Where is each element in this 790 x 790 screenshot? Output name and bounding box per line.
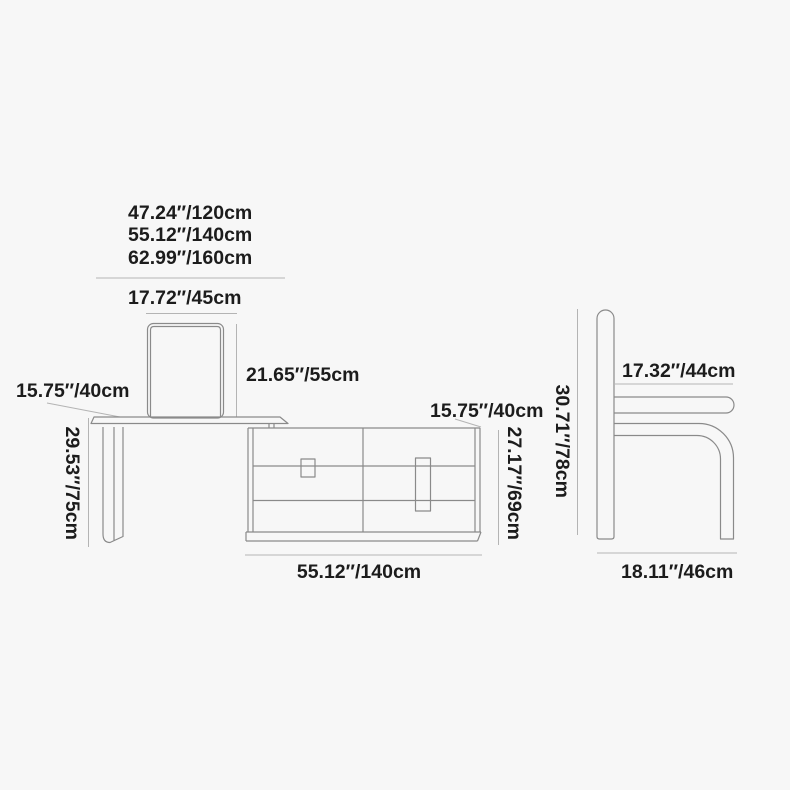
cabinet: [246, 428, 481, 541]
drawer-divider-lines: [253, 466, 475, 501]
desk-height-label: 29.53″/75cm: [61, 418, 83, 548]
desk-width-options: 47.24″/120cm 55.12″/140cm 62.99″/160cm: [128, 202, 252, 269]
desk-leg: [103, 427, 123, 543]
tabletop-connectors: [269, 424, 274, 429]
chair-seat-rail: [614, 397, 734, 413]
chair-height-label: 30.71″/78cm: [551, 376, 573, 506]
drawer-handle-left: [301, 459, 315, 477]
desk-width-option-160: 62.99″/160cm: [128, 247, 252, 269]
cabinet-height-label: 27.17″/69cm: [503, 418, 525, 548]
mirror: [148, 324, 224, 419]
mirror-height-label: 21.65″/55cm: [246, 364, 359, 386]
desk-width-option-120: 47.24″/120cm: [128, 202, 252, 224]
cabinet-plinth: [246, 532, 481, 541]
mirror-inner-frame: [151, 327, 221, 418]
tabletop-depth-label: 15.75″/40cm: [16, 380, 129, 402]
desk-width-option-140: 55.12″/140cm: [128, 224, 252, 246]
chair-seat-width-label: 17.32″/44cm: [622, 360, 735, 382]
desk: [91, 417, 288, 543]
chair-front-leg: [614, 424, 734, 540]
cabinet-depth-label: 15.75″/40cm: [430, 400, 543, 422]
chair-back-post: [597, 310, 614, 539]
cabinet-body: [248, 428, 480, 532]
chair-depth-label: 18.11″/46cm: [621, 561, 733, 583]
mirror-width-label: 17.72″/45cm: [128, 287, 241, 309]
mirror-outer-frame: [148, 324, 224, 419]
tabletop-depth-leader-line: [47, 403, 120, 417]
chair: [597, 310, 734, 539]
dimension-diagram: 47.24″/120cm 55.12″/140cm 62.99″/160cm 1…: [0, 0, 790, 790]
cabinet-width-label: 55.12″/140cm: [289, 561, 429, 583]
